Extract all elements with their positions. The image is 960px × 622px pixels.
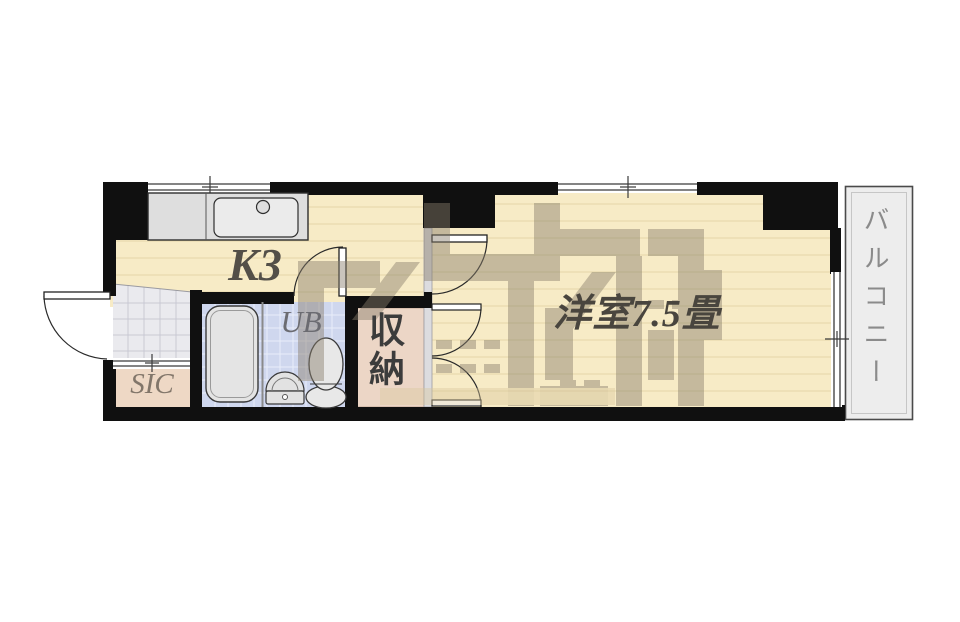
floorplan-drawing (0, 0, 960, 622)
bathtub (206, 302, 263, 407)
balcony-floor (846, 187, 913, 420)
kitchen-sink (148, 193, 308, 240)
floorplan-canvas: K3 洋室7.5畳 UB SIC 収納 バルコニー (0, 0, 960, 622)
entrance-tile-floor (113, 284, 192, 361)
entrance-door (44, 292, 110, 359)
shoe-closet-floor (115, 368, 190, 407)
